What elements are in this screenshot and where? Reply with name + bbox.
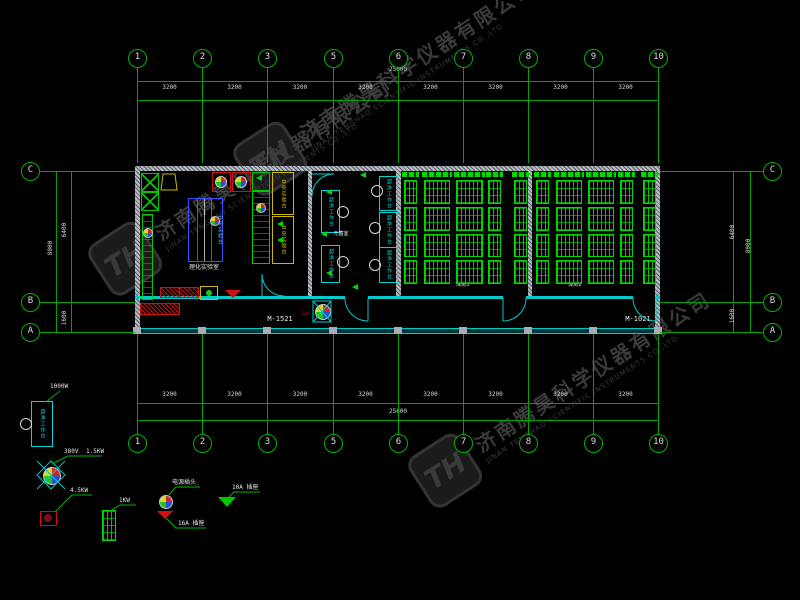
door-arc: [503, 298, 526, 321]
fume-hood-symbol: [161, 174, 177, 190]
cad-linework: [0, 0, 800, 600]
vent-triangle-icon: [225, 290, 241, 298]
cad-canvas: TH 济南腾昊科学仪器有限公司 JINAN TENGHAO SCIENTIFIC…: [0, 0, 800, 600]
legend-socket-16a-symbol: [157, 511, 173, 519]
door-arc: [345, 298, 368, 321]
door-arc: [312, 174, 334, 196]
door-arc: [262, 274, 284, 296]
door-arc: [633, 298, 656, 321]
floor-plan: 25600 25600 8000 6400 1600 6400 1600 800…: [0, 0, 800, 600]
